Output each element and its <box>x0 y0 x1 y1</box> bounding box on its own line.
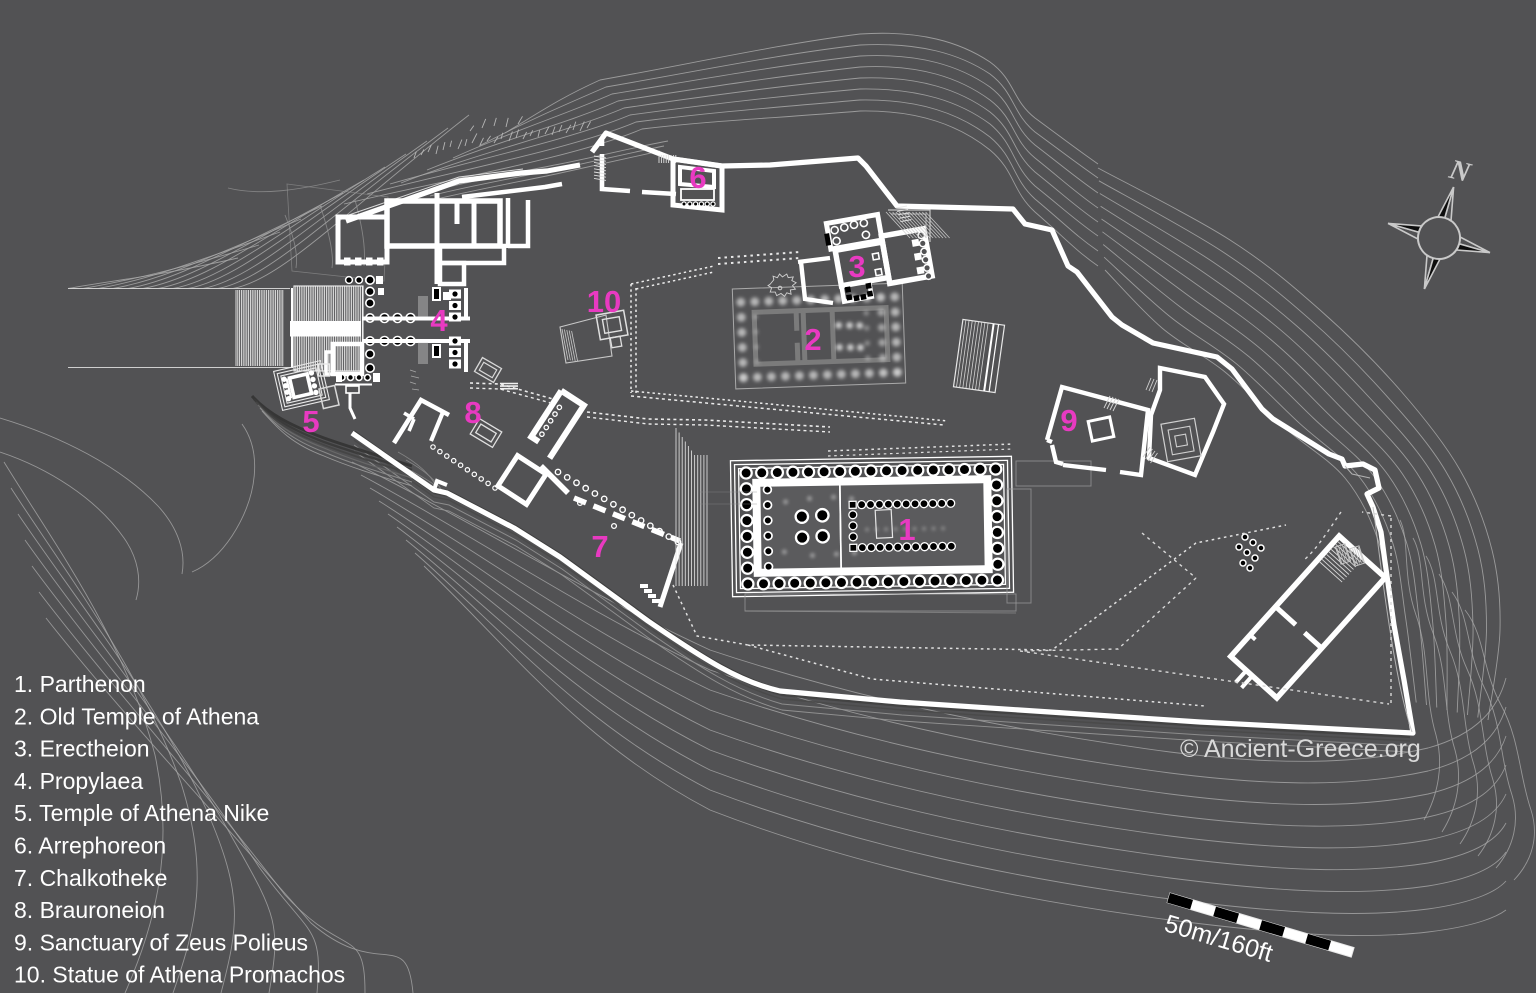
svg-text:9: 9 <box>1060 403 1077 438</box>
svg-text:1: 1 <box>898 512 915 547</box>
svg-text:6. Arrephoreon: 6. Arrephoreon <box>14 833 166 859</box>
svg-text:10: 10 <box>587 284 621 319</box>
svg-text:1. Parthenon: 1. Parthenon <box>14 671 146 697</box>
svg-text:5. Temple of Athena Nike: 5. Temple of Athena Nike <box>14 800 269 826</box>
svg-text:3: 3 <box>848 249 865 284</box>
svg-text:2. Old Temple of Athena: 2. Old Temple of Athena <box>14 703 259 729</box>
svg-text:9. Sanctuary of Zeus Polieus: 9. Sanctuary of Zeus Polieus <box>14 929 308 955</box>
svg-text:3. Erectheion: 3. Erectheion <box>14 736 150 762</box>
svg-text:© Ancient-Greece.org: © Ancient-Greece.org <box>1180 735 1421 763</box>
svg-text:7: 7 <box>591 529 608 564</box>
svg-text:10. Statue of Athena Promachos: 10. Statue of Athena Promachos <box>14 962 345 988</box>
svg-text:8: 8 <box>464 395 481 430</box>
svg-text:2: 2 <box>804 322 821 357</box>
svg-text:6: 6 <box>689 160 706 195</box>
svg-text:4. Propylaea: 4. Propylaea <box>14 768 143 794</box>
svg-text:7. Chalkotheke: 7. Chalkotheke <box>14 865 167 891</box>
svg-text:4: 4 <box>430 303 448 338</box>
svg-text:5: 5 <box>302 404 319 439</box>
svg-text:8. Brauroneion: 8. Brauroneion <box>14 897 165 923</box>
